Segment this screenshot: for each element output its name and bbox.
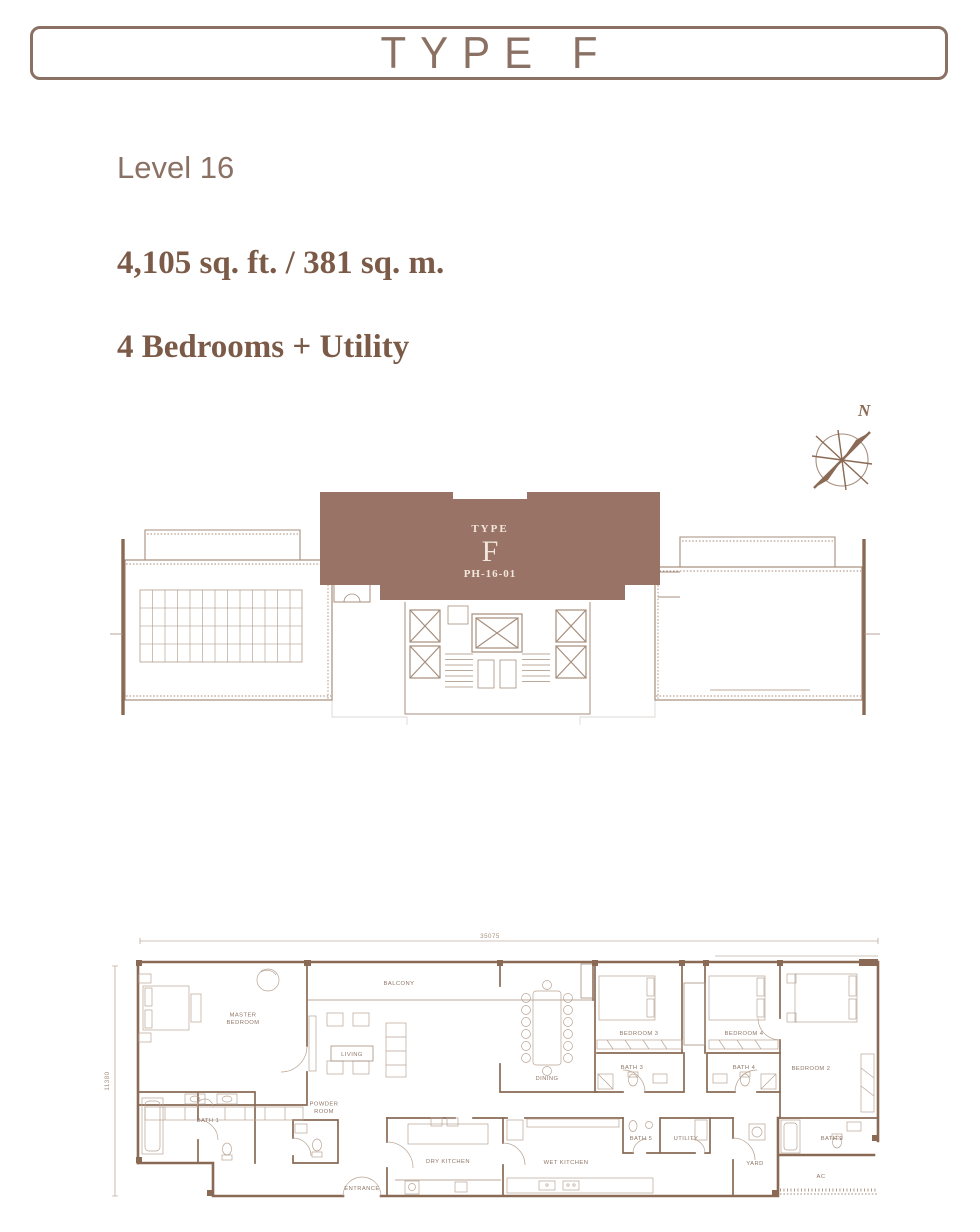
room-label-balcony: BALCONY — [384, 981, 415, 987]
room-label-living: LIVING — [341, 1052, 363, 1058]
key-plan-core — [405, 602, 590, 714]
bedrooms-label: 4 Bedrooms + Utility — [117, 329, 409, 366]
key-plan-type-caption: TYPE — [471, 523, 508, 535]
brochure-page: { "header": { "title": "TYPE F" }, "unit… — [0, 0, 980, 1232]
key-plan: TYPE F PH-16-01 — [110, 482, 880, 725]
page-title: TYPE F — [366, 28, 611, 79]
dimension-lines: 35075 11380 — [104, 933, 878, 1196]
room-label-bedroom2: BEDROOM 2 — [792, 1066, 831, 1072]
key-plan-left-wing — [110, 530, 332, 715]
room-label-powder-room: ROOM — [314, 1109, 334, 1115]
inner-walls — [136, 960, 878, 1196]
room-label-powder-room: POWDER — [310, 1101, 339, 1107]
key-plan-type-f-block: TYPE F PH-16-01 — [320, 492, 660, 600]
room-label-bath3: BATH 3 — [621, 1065, 644, 1071]
furniture — [139, 969, 874, 1194]
room-label-master-bedroom: BEDROOM — [226, 1020, 259, 1026]
compass-north-label: N — [857, 401, 871, 420]
level-label: Level 16 — [117, 150, 234, 186]
room-label-bedroom3: BEDROOM 3 — [620, 1031, 659, 1037]
key-plan-unit-number: PH-16-01 — [464, 568, 517, 580]
key-plan-faint-outline — [332, 700, 655, 725]
room-label-bedroom4: BEDROOM 4 — [725, 1031, 764, 1037]
area-label: 4,105 sq. ft. / 381 sq. m. — [117, 245, 444, 282]
room-label-bath1: BATH 1 — [197, 1118, 220, 1124]
room-label-bath5: BATH 5 — [630, 1136, 653, 1142]
type-title-box: TYPE F — [30, 26, 948, 80]
key-plan-right-wing — [655, 537, 880, 715]
room-label-dining: DINING — [536, 1076, 559, 1082]
floor-plan: 35075 11380 — [95, 928, 890, 1220]
outer-walls — [138, 959, 878, 1196]
room-label-master-bedroom: MASTER — [230, 1012, 257, 1018]
room-label-ac: AC — [817, 1174, 826, 1180]
room-label-entrance: ENTRANCE — [344, 1186, 380, 1192]
dim-height-label: 11380 — [104, 1071, 111, 1090]
dim-width-label: 35075 — [480, 933, 500, 940]
room-label-bath2: BATH 2 — [821, 1136, 844, 1142]
room-label-utility: UTILITY — [674, 1136, 699, 1142]
room-label-wet-kitchen: WET KITCHEN — [544, 1160, 589, 1166]
key-plan-type-letter: F — [482, 535, 499, 568]
room-label-yard: YARD — [746, 1161, 763, 1167]
room-label-bath4: BATH 4 — [733, 1065, 756, 1071]
room-label-dry-kitchen: DRY KITCHEN — [426, 1159, 470, 1165]
